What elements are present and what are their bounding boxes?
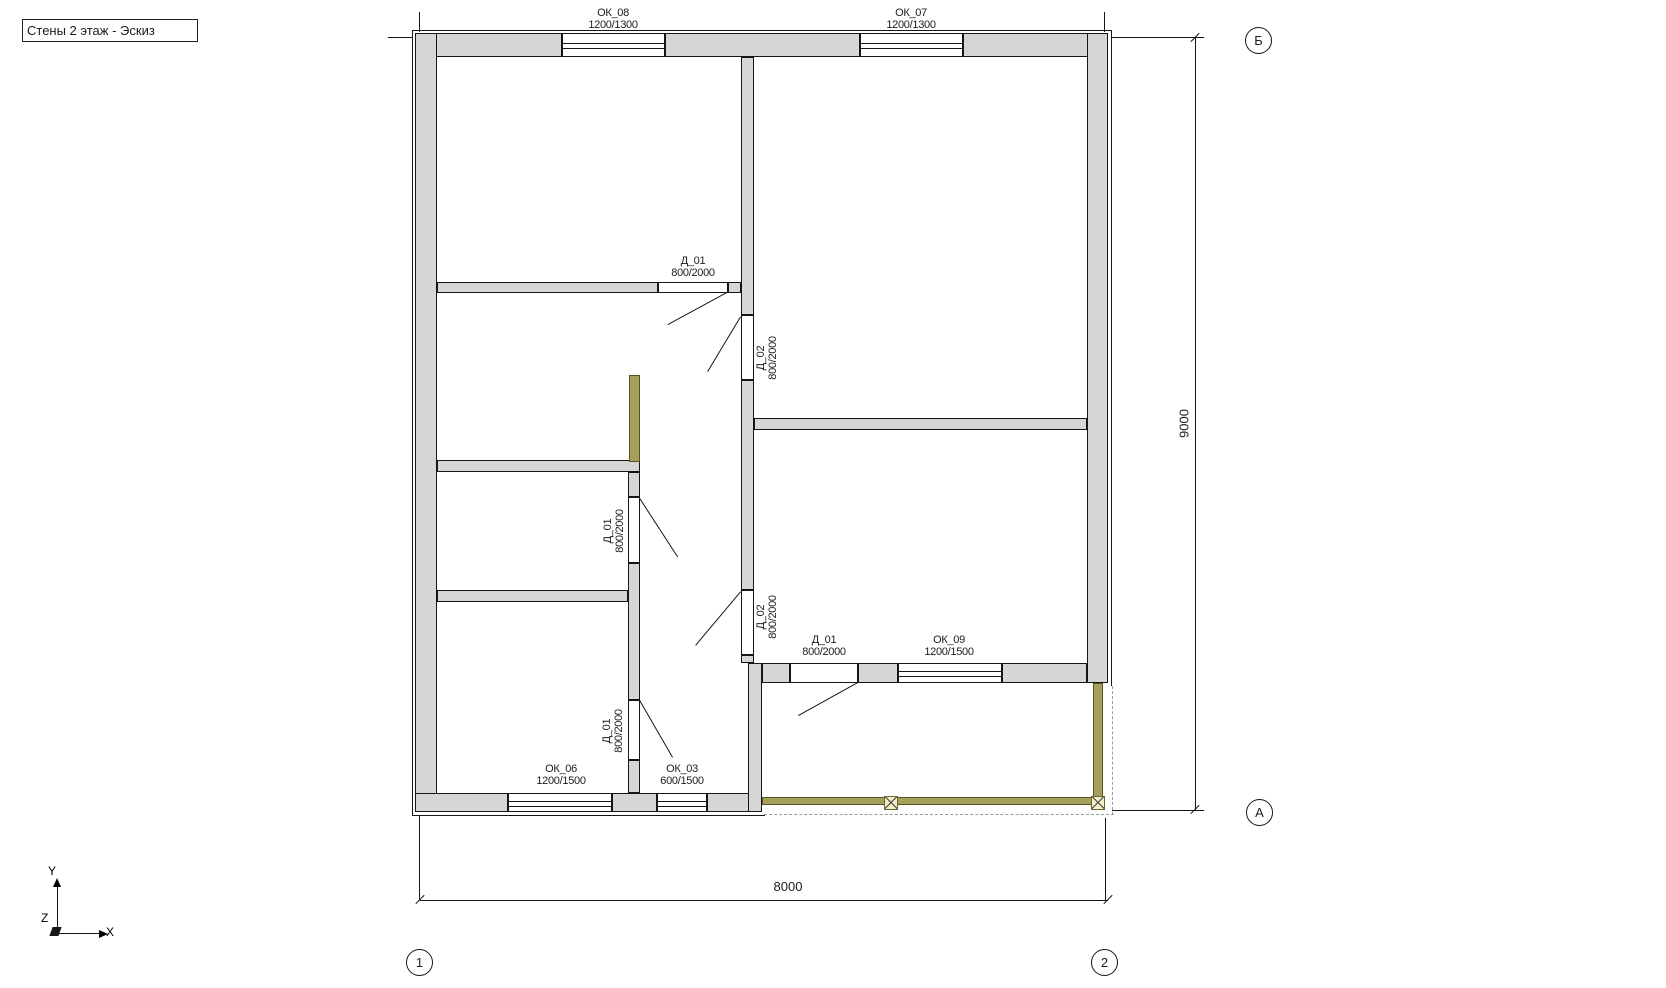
window-glass: [563, 43, 664, 49]
door-opening-d01-a[interactable]: [658, 282, 728, 293]
wall-central-segment-3[interactable]: [741, 655, 754, 663]
window-label-ok08: ОК_08 1200/1300: [573, 7, 653, 31]
wall-partition-segment-2[interactable]: [628, 563, 640, 700]
wall-terrace-top-segment-2[interactable]: [858, 663, 898, 683]
wall-right[interactable]: [1087, 33, 1108, 683]
wall-interior-b[interactable]: [437, 460, 640, 472]
wall-terrace-left[interactable]: [748, 663, 762, 812]
door-opening-d01-d[interactable]: [790, 663, 858, 683]
door-label-d01-a: Д_01 800/2000: [653, 255, 733, 279]
ext-tick-top-left-v: [419, 12, 420, 32]
window-label-ok06: ОК_06 1200/1500: [521, 763, 601, 787]
label-size: 1200/1500: [521, 775, 601, 787]
floor-plan-canvas: Стены 2 этаж - Эскиз: [0, 0, 1666, 988]
dim-h-line: [420, 900, 1108, 901]
wall-terrace-top-segment-3[interactable]: [1002, 663, 1087, 683]
dim-h-extension-left: [419, 815, 420, 900]
dim-h-extension-right: [1105, 818, 1106, 900]
label-size: 1200/1300: [871, 19, 951, 31]
window-ok09[interactable]: [898, 663, 1002, 683]
window-ok08[interactable]: [562, 33, 665, 57]
dim-v-value: 9000: [1177, 399, 1192, 449]
wall-central-segment-1[interactable]: [741, 57, 754, 315]
wall-interior-a-hinge-block[interactable]: [728, 282, 741, 293]
label-size: 800/2000: [614, 497, 626, 565]
label-size: 1200/1300: [573, 19, 653, 31]
label-id: Д_01: [653, 255, 733, 267]
outer-line-bottom: [412, 815, 765, 816]
label-size: 800/2000: [784, 646, 864, 658]
door-swing-d02-b: [695, 591, 741, 645]
door-label-d01-b: Д_01 800/2000: [602, 497, 626, 565]
window-glass: [861, 43, 962, 49]
door-opening-d02-b[interactable]: [741, 590, 754, 655]
door-opening-d01-b[interactable]: [628, 497, 640, 563]
label-size: 600/1500: [642, 775, 722, 787]
window-glass: [899, 671, 1001, 677]
view-title: Стены 2 этаж - Эскиз: [27, 23, 155, 38]
window-label-ok07: ОК_07 1200/1300: [871, 7, 951, 31]
grid-mark-1: 1: [406, 949, 433, 976]
wall-highlighted-partition[interactable]: [629, 375, 640, 462]
label-size: 800/2000: [653, 267, 733, 279]
door-swing-d01-c: [639, 700, 673, 758]
window-ok03[interactable]: [657, 793, 707, 812]
label-id: Д_01: [784, 634, 864, 646]
wall-top-segment-1[interactable]: [415, 33, 562, 57]
ucs-x-label: X: [106, 925, 114, 939]
window-label-ok09: ОК_09 1200/1500: [909, 634, 989, 658]
grid-mark-a: А: [1246, 799, 1273, 826]
label-id: ОК_09: [909, 634, 989, 646]
door-swing-d01-b: [639, 498, 678, 557]
ucs-z-label: Z: [41, 911, 48, 925]
door-swing-d02-a: [707, 316, 741, 371]
ext-tick-top-left-h: [388, 37, 412, 38]
label-id: Д_02: [755, 583, 767, 651]
ext-tick-top-right-v: [1104, 12, 1105, 32]
window-ok06[interactable]: [508, 793, 612, 812]
terrace-rail-right[interactable]: [1093, 683, 1103, 797]
label-id: ОК_08: [573, 7, 653, 19]
wall-central-segment-2[interactable]: [741, 380, 754, 590]
terrace-post-2[interactable]: [1091, 796, 1105, 810]
outer-line-left: [412, 30, 413, 816]
window-glass: [658, 801, 706, 807]
terrace-rail-bottom[interactable]: [762, 797, 1105, 805]
door-swing-d01-d: [798, 682, 858, 716]
label-id: ОК_03: [642, 763, 722, 775]
wall-top-segment-2[interactable]: [665, 33, 860, 57]
wall-bottom-segment-2[interactable]: [612, 793, 657, 812]
door-label-d01-c: Д_01 800/2000: [601, 697, 625, 765]
label-id: Д_02: [755, 324, 767, 392]
label-id: Д_01: [602, 497, 614, 565]
wall-interior-c[interactable]: [437, 590, 628, 602]
outer-line-top: [412, 30, 1112, 31]
label-id: ОК_07: [871, 7, 951, 19]
wall-interior-a[interactable]: [437, 282, 658, 293]
window-glass: [509, 801, 611, 807]
door-opening-d01-c[interactable]: [628, 700, 640, 760]
label-size: 800/2000: [613, 697, 625, 765]
ucs-y-label: Y: [48, 864, 56, 878]
door-opening-d02-a[interactable]: [741, 315, 754, 380]
dim-v-extension-bottom: [1112, 810, 1204, 811]
door-label-d02-b: Д_02 800/2000: [755, 583, 779, 651]
label-size: 800/2000: [767, 583, 779, 651]
dim-v-extension-top: [1112, 37, 1204, 38]
terrace-dashed-edge-bottom: [764, 814, 1114, 815]
wall-left[interactable]: [415, 33, 437, 812]
ucs-x-axis-line: [58, 933, 103, 934]
dim-v-line: [1195, 38, 1196, 810]
outer-line-right: [1111, 30, 1112, 686]
ucs-y-arrowhead-icon: [53, 878, 61, 887]
wall-bottom-segment-1[interactable]: [415, 793, 508, 812]
door-label-d02-a: Д_02 800/2000: [755, 324, 779, 392]
wall-partition-segment-3[interactable]: [628, 760, 640, 793]
grid-mark-b: Б: [1245, 27, 1272, 54]
door-label-d01-d: Д_01 800/2000: [784, 634, 864, 658]
terrace-post-1[interactable]: [884, 796, 898, 810]
window-label-ok03: ОК_03 600/1500: [642, 763, 722, 787]
label-id: ОК_06: [521, 763, 601, 775]
label-size: 1200/1500: [909, 646, 989, 658]
ucs-origin-icon: [49, 927, 61, 936]
door-swing-d01-a: [668, 292, 727, 325]
view-title-box: Стены 2 этаж - Эскиз: [22, 19, 198, 42]
wall-partition-segment-1[interactable]: [628, 472, 640, 497]
dim-h-value: 8000: [763, 879, 813, 894]
window-ok07[interactable]: [860, 33, 963, 57]
label-id: Д_01: [601, 697, 613, 765]
wall-right-room-divider[interactable]: [754, 418, 1087, 430]
label-size: 800/2000: [767, 324, 779, 392]
grid-mark-2: 2: [1091, 949, 1118, 976]
terrace-dashed-edge-right: [1112, 686, 1113, 815]
wall-terrace-top-segment-1[interactable]: [762, 663, 790, 683]
